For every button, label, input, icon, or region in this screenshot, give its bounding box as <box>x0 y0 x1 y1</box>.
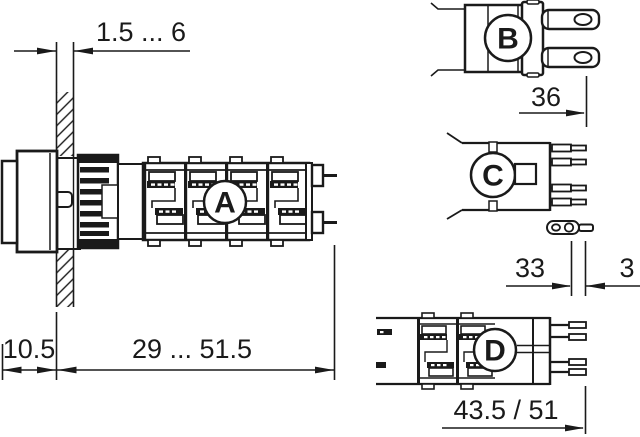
mounting-nut <box>78 155 118 248</box>
dim-body-depth-label: 43.5 / 51 <box>453 395 558 425</box>
arrowhead-left-icon <box>586 283 605 290</box>
view-d-device: D <box>376 313 586 389</box>
dim-panel-thickness-label: 1.5 ... 6 <box>96 17 186 47</box>
view-d-label: D <box>484 335 506 368</box>
dim-pin-tip: 3 <box>586 253 640 289</box>
terminal-lug <box>547 221 593 234</box>
arrowhead-left-icon <box>58 367 77 374</box>
dim-front-depth: 10.5 <box>3 312 57 380</box>
view-c-label: C <box>482 160 504 193</box>
view-c-device: C <box>447 133 586 219</box>
view-b-label: B <box>497 23 519 56</box>
dim-pin-tip-label: 3 <box>619 253 634 283</box>
blade-terminal-bottom <box>542 48 599 67</box>
view-a-label: A <box>214 187 236 220</box>
button-cap <box>2 161 17 243</box>
keying-notch <box>515 164 536 184</box>
dim-connector-width-label: 36 <box>531 82 561 112</box>
view-a-device: A <box>2 151 337 252</box>
arrowhead-right-icon <box>37 367 56 374</box>
arrowhead-right-icon <box>552 283 571 290</box>
blade-terminal-top <box>542 10 599 29</box>
dim-pin-offset: 33 <box>506 241 586 296</box>
rear-terminals <box>312 165 337 233</box>
arrowhead-left-icon <box>3 367 22 374</box>
arrowhead-right-icon <box>315 367 334 374</box>
dim-front-depth-label: 10.5 <box>3 334 56 364</box>
dim-pin-offset-label: 33 <box>515 253 545 283</box>
dim-mounting-depth: 29 ... 51.5 <box>57 245 335 380</box>
dim-body-depth: 43.5 / 51 <box>442 386 586 434</box>
arrowhead-right-icon <box>566 110 585 117</box>
arrowhead-right-icon <box>565 425 584 432</box>
arrowhead-left-icon <box>74 48 93 55</box>
arrowhead-right-icon <box>37 48 56 55</box>
dim-panel-thickness: 1.5 ... 6 <box>14 17 190 54</box>
dim-mounting-depth-label: 29 ... 51.5 <box>132 334 252 364</box>
view-b-device: B <box>431 0 599 77</box>
dim-connector-width: 36 <box>519 76 587 127</box>
bezel <box>17 151 57 252</box>
drawing-linework: A 1.5 ... 6 10.5 29 ... 51.5 <box>0 0 640 437</box>
technical-drawing-canvas: A 1.5 ... 6 10.5 29 ... 51.5 <box>0 0 640 437</box>
